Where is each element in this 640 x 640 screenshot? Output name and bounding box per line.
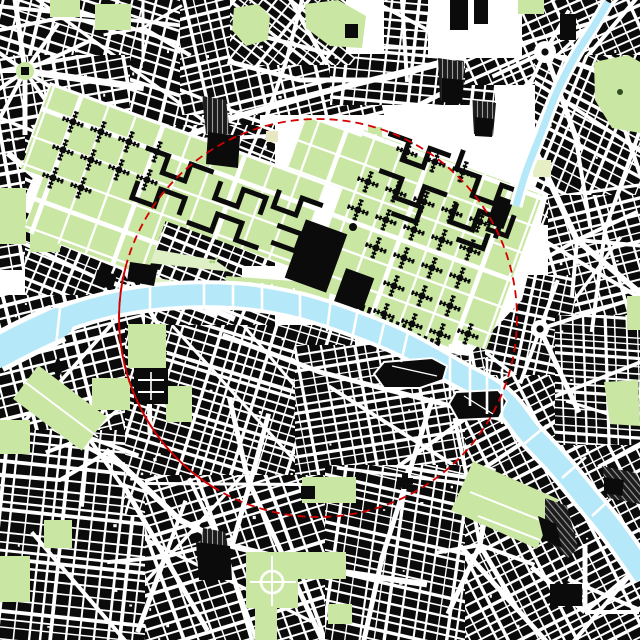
- park-area: [328, 604, 352, 624]
- station-hall-block: [442, 78, 464, 104]
- park-right-a: [604, 380, 640, 426]
- park-area: [627, 296, 640, 330]
- garden-strip: [255, 608, 277, 640]
- park-top-b: [95, 4, 131, 30]
- tree-dot: [216, 257, 219, 260]
- arch-monument: [21, 67, 29, 75]
- courtyard-palace: [134, 368, 168, 404]
- paris-figure-ground-map: [0, 0, 640, 640]
- tree-dot: [212, 261, 215, 264]
- rail-terminal-n1: [438, 58, 464, 104]
- park-feature-dot: [617, 89, 623, 95]
- rail-yard-block: [474, 0, 488, 24]
- park-top-right: [518, 0, 544, 14]
- park-bl-b: [44, 520, 72, 548]
- park-area: [296, 552, 346, 579]
- park-area: [604, 380, 640, 426]
- park-bc: [328, 604, 352, 624]
- park-area: [255, 608, 277, 640]
- park-area: [92, 378, 130, 410]
- park-west-a: [92, 378, 130, 410]
- station-hall-block: [475, 117, 494, 137]
- park-area: [518, 0, 544, 14]
- garden-large-circle: [246, 552, 298, 608]
- monument-dot: [349, 223, 357, 231]
- park-bl-a: [0, 556, 30, 602]
- park-sw-corner: [0, 420, 30, 454]
- park-west-edge: [0, 188, 26, 244]
- rail-terminal-n2: [472, 100, 496, 137]
- park-top-a: [50, 0, 80, 17]
- monument-block: [345, 24, 358, 38]
- esplanade: [128, 324, 166, 368]
- station-hall-block: [196, 542, 232, 580]
- rail-yard-block: [550, 584, 582, 606]
- park-west-b: [166, 386, 192, 422]
- plaza-monument-dot: [541, 48, 548, 55]
- garden-b: [296, 552, 346, 579]
- park-area: [166, 386, 192, 422]
- tree-dot: [209, 260, 212, 263]
- park-area: [128, 324, 166, 368]
- map-stage: [0, 0, 640, 640]
- plaza-monument-dot: [536, 325, 543, 332]
- park-area: [50, 0, 80, 17]
- park-area: [95, 4, 131, 30]
- park-area: [266, 131, 278, 142]
- park-area: [0, 188, 26, 244]
- park-area: [0, 556, 30, 602]
- park-right-b: [627, 296, 640, 330]
- rail-yard-block: [450, 0, 468, 30]
- park-area: [0, 420, 30, 454]
- monument-block: [301, 486, 315, 499]
- garden-a: [301, 477, 356, 503]
- rail-tracks-hatch: [202, 96, 230, 134]
- square-beige: [266, 131, 278, 142]
- rail-yard-block: [560, 14, 576, 40]
- station-hall-block: [604, 477, 624, 496]
- park-area: [44, 520, 72, 548]
